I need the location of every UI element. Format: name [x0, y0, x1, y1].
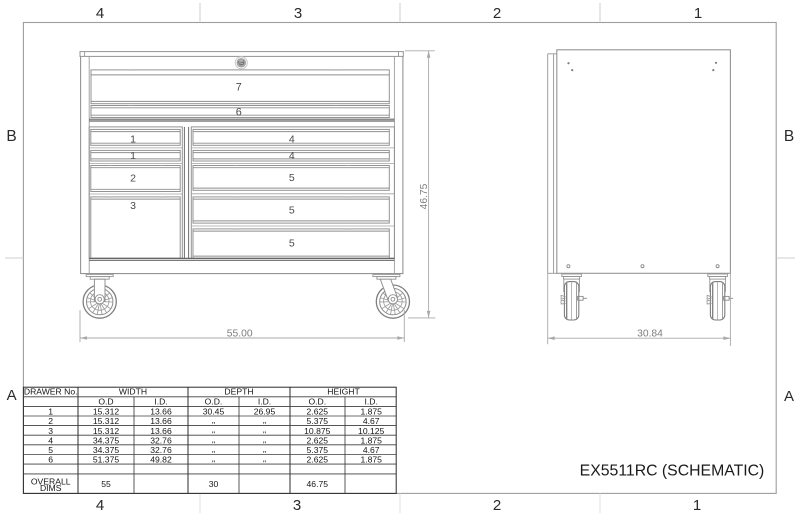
svg-text:49.82: 49.82: [150, 455, 172, 465]
svg-text:1: 1: [693, 497, 701, 514]
svg-text:": ": [212, 420, 215, 430]
svg-text:46.75: 46.75: [419, 183, 430, 209]
svg-text:51.375: 51.375: [93, 455, 120, 465]
svg-text:4: 4: [289, 150, 295, 162]
svg-text:O.D.: O.D.: [308, 396, 326, 406]
svg-text:15.312: 15.312: [93, 407, 120, 417]
svg-text:2: 2: [48, 416, 53, 426]
svg-text:2.625: 2.625: [307, 435, 329, 445]
svg-text:13.66: 13.66: [150, 407, 172, 417]
svg-text:A: A: [7, 387, 17, 404]
svg-text:I.D.: I.D.: [154, 396, 167, 406]
svg-text:6: 6: [48, 455, 53, 465]
svg-text:34.375: 34.375: [93, 445, 120, 455]
svg-text:DEPTH: DEPTH: [224, 387, 253, 397]
svg-text:4: 4: [48, 435, 53, 445]
svg-text:": ": [212, 449, 215, 459]
svg-text:26.95: 26.95: [254, 407, 276, 417]
svg-text:B: B: [6, 128, 16, 145]
svg-text:32.76: 32.76: [150, 445, 172, 455]
svg-text:5: 5: [289, 238, 295, 250]
svg-text:5: 5: [289, 205, 295, 217]
svg-text:": ": [263, 420, 266, 430]
svg-text:3: 3: [48, 426, 53, 436]
svg-text:1.875: 1.875: [360, 435, 382, 445]
svg-text:": ": [263, 459, 266, 469]
svg-text:7: 7: [236, 82, 242, 94]
svg-text:DRAWER No.: DRAWER No.: [24, 387, 78, 397]
svg-text:2.625: 2.625: [307, 407, 329, 417]
svg-text:10.875: 10.875: [304, 426, 331, 436]
svg-text:34.375: 34.375: [93, 435, 120, 445]
svg-text:": ": [263, 449, 266, 459]
svg-text:5.375: 5.375: [307, 445, 329, 455]
svg-text:15.312: 15.312: [93, 426, 120, 436]
svg-text:4: 4: [289, 133, 295, 145]
svg-text:4: 4: [96, 5, 104, 22]
svg-text:I.D.: I.D.: [365, 396, 378, 406]
svg-text:": ": [263, 439, 266, 449]
svg-text:": ": [263, 430, 266, 440]
svg-text:30.84: 30.84: [637, 328, 663, 339]
svg-text:32.76: 32.76: [150, 435, 172, 445]
svg-text:B: B: [784, 128, 794, 145]
svg-text:3: 3: [130, 200, 136, 212]
svg-text:DIMS: DIMS: [40, 483, 62, 493]
svg-text:5: 5: [289, 172, 295, 184]
svg-text:15.312: 15.312: [93, 416, 120, 426]
svg-text:46.75: 46.75: [307, 479, 329, 489]
svg-text:13.66: 13.66: [150, 416, 172, 426]
svg-text:3: 3: [294, 5, 302, 22]
svg-text:55: 55: [101, 479, 111, 489]
svg-text:55.00: 55.00: [227, 328, 253, 339]
svg-text:1.875: 1.875: [360, 407, 382, 417]
svg-text:13.66: 13.66: [150, 426, 172, 436]
svg-text:I.D.: I.D.: [258, 396, 271, 406]
svg-text:2: 2: [493, 5, 501, 22]
svg-text:5: 5: [48, 445, 53, 455]
svg-text:4: 4: [96, 497, 104, 514]
svg-text:2: 2: [130, 173, 136, 185]
svg-text:1: 1: [130, 133, 136, 145]
svg-text:1: 1: [48, 407, 53, 417]
svg-text:2: 2: [493, 497, 501, 514]
svg-text:5.375: 5.375: [307, 416, 329, 426]
svg-text:6: 6: [236, 107, 242, 119]
svg-text:HEIGHT: HEIGHT: [327, 387, 360, 397]
svg-text:EX5511RC (SCHEMATIC): EX5511RC (SCHEMATIC): [580, 463, 765, 480]
svg-text:O.D: O.D: [98, 396, 113, 406]
svg-text:4.67: 4.67: [363, 416, 380, 426]
svg-text:1.875: 1.875: [360, 455, 382, 465]
svg-text:O.D.: O.D.: [205, 396, 223, 406]
svg-text:2.625: 2.625: [307, 455, 329, 465]
svg-text:4.67: 4.67: [363, 445, 380, 455]
svg-text:": ": [212, 430, 215, 440]
svg-text:": ": [212, 459, 215, 469]
svg-text:1: 1: [130, 150, 136, 162]
svg-text:": ": [212, 439, 215, 449]
svg-text:30.45: 30.45: [203, 407, 225, 417]
svg-text:WIDTH: WIDTH: [119, 387, 147, 397]
svg-text:1: 1: [694, 5, 702, 22]
svg-text:10.125: 10.125: [358, 426, 385, 436]
svg-text:3: 3: [293, 497, 301, 514]
svg-text:A: A: [784, 388, 794, 405]
svg-text:30: 30: [209, 479, 219, 489]
